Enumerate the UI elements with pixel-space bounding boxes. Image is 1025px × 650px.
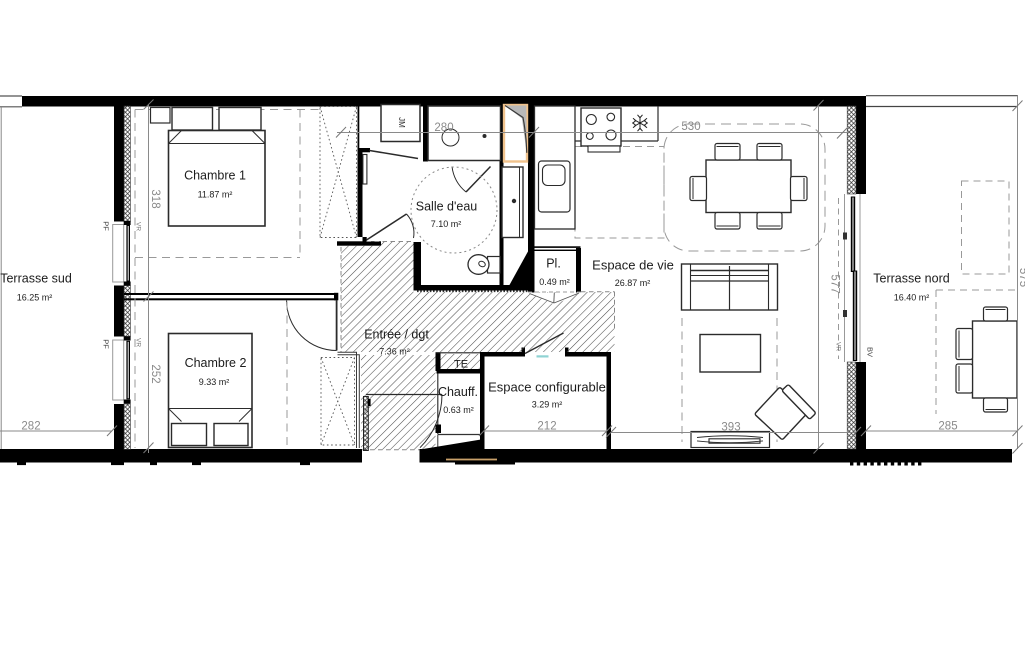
svg-text:Chauff.: Chauff. bbox=[438, 385, 478, 399]
svg-text:7.36 m²: 7.36 m² bbox=[379, 347, 410, 357]
svg-text:PF: PF bbox=[102, 221, 111, 231]
svg-text:16.25 m²: 16.25 m² bbox=[17, 293, 53, 303]
svg-text:393: 393 bbox=[721, 422, 740, 434]
svg-text:11.87 m²: 11.87 m² bbox=[198, 190, 233, 200]
svg-text:JM: JM bbox=[397, 117, 406, 128]
svg-text:318: 318 bbox=[149, 189, 161, 208]
svg-text:Pl.: Pl. bbox=[546, 257, 561, 271]
svg-text:577: 577 bbox=[829, 274, 841, 293]
svg-text:Chambre 2: Chambre 2 bbox=[185, 356, 247, 370]
svg-text:0.63 m²: 0.63 m² bbox=[443, 405, 474, 415]
svg-text:575: 575 bbox=[1017, 268, 1025, 287]
svg-text:9.33 m²: 9.33 m² bbox=[199, 377, 230, 387]
svg-text:Espace configurable: Espace configurable bbox=[488, 380, 606, 395]
svg-text:Terrasse nord: Terrasse nord bbox=[873, 272, 949, 286]
svg-text:252: 252 bbox=[149, 364, 161, 383]
svg-text:Espace de vie: Espace de vie bbox=[592, 258, 674, 273]
svg-text:0.49 m²: 0.49 m² bbox=[539, 277, 570, 287]
svg-text:7.10 m²: 7.10 m² bbox=[431, 219, 462, 229]
svg-text:Chambre 1: Chambre 1 bbox=[184, 169, 246, 183]
svg-text:TE: TE bbox=[454, 359, 468, 371]
svg-text:PF: PF bbox=[102, 339, 111, 349]
svg-text:280: 280 bbox=[434, 122, 453, 134]
svg-text:BV: BV bbox=[866, 347, 875, 357]
svg-text:530: 530 bbox=[681, 121, 700, 133]
svg-text:VR: VR bbox=[135, 338, 142, 347]
svg-text:282: 282 bbox=[21, 421, 40, 433]
svg-text:VR: VR bbox=[835, 342, 842, 351]
svg-text:26.87 m²: 26.87 m² bbox=[615, 278, 651, 288]
svg-text:3.29 m²: 3.29 m² bbox=[532, 400, 563, 410]
svg-text:212: 212 bbox=[537, 421, 556, 433]
svg-text:285: 285 bbox=[938, 421, 957, 433]
svg-text:Terrasse sud: Terrasse sud bbox=[0, 272, 72, 286]
svg-text:16.40 m²: 16.40 m² bbox=[894, 293, 930, 303]
svg-text:Salle d'eau: Salle d'eau bbox=[416, 200, 478, 214]
svg-text:Entrée / dgt: Entrée / dgt bbox=[364, 328, 429, 342]
svg-text:VR: VR bbox=[135, 222, 142, 231]
